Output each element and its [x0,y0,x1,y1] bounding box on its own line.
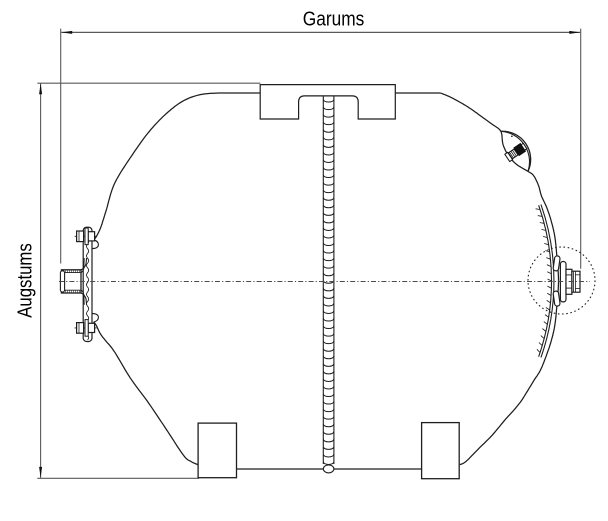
svg-text:Garums: Garums [303,8,365,31]
svg-text:Augstums: Augstums [14,243,37,318]
